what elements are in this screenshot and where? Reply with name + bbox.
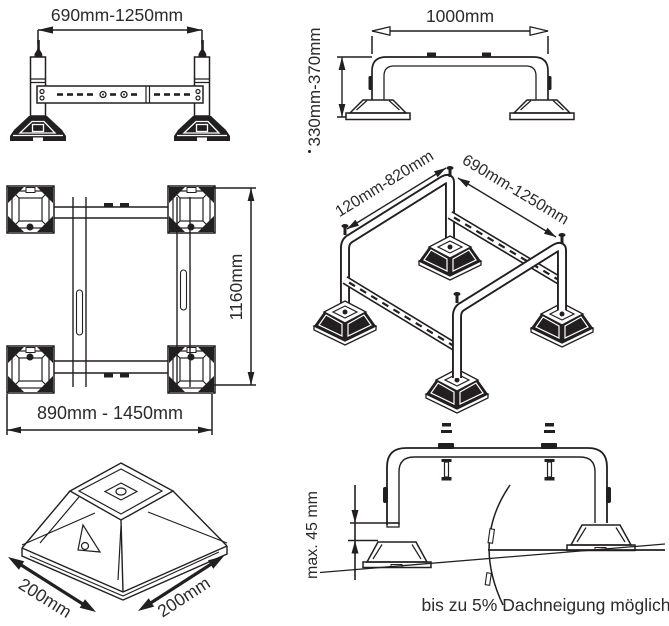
top-foot-bl xyxy=(7,346,54,393)
slope-mount-bolts xyxy=(441,423,555,481)
side-right-foot xyxy=(510,100,574,120)
front-view: 690mm-1250mm xyxy=(0,0,240,150)
top-depth-label: 1160mm xyxy=(226,254,246,321)
iso-width-label: 690mm-1250mm xyxy=(459,152,571,229)
side-view: 1000mm 330mm-370mm xyxy=(300,0,669,158)
top-width-dimension: 890mm - 1450mm xyxy=(7,394,212,435)
foot-detail-view: 200mm 200mm xyxy=(0,440,280,626)
side-width-label: 1000mm xyxy=(426,6,494,26)
front-right-foot xyxy=(174,116,230,141)
side-width-dimension: 1000mm xyxy=(372,6,548,54)
slope-caption: bis zu 5% Dachneigung möglich xyxy=(421,595,669,615)
technical-drawing-sheet: 690mm-1250mm xyxy=(0,0,669,626)
front-cross-rail xyxy=(37,86,203,103)
side-arch-tube xyxy=(369,53,552,101)
foot-top-face xyxy=(70,463,173,520)
side-height-dimension: 330mm-370mm xyxy=(305,27,372,146)
isometric-view: 120mm-820mm 690mm-1250mm xyxy=(300,142,669,426)
front-left-foot xyxy=(10,116,66,141)
front-width-label: 690mm-1250mm xyxy=(51,5,183,25)
iso-foot-left xyxy=(314,301,376,345)
top-depth-dimension: 1160mm xyxy=(213,188,256,385)
top-foot-br xyxy=(168,346,215,393)
side-left-foot xyxy=(346,100,410,120)
iso-rail-label: 120mm-820mm xyxy=(333,148,437,221)
roof-slope-view: max. 45 mm bis zu 5% Dachneigung möglich xyxy=(300,420,669,626)
iso-width-dimension: 690mm-1250mm xyxy=(458,152,572,237)
slope-height-label: max. 45 mm xyxy=(304,491,321,579)
foot-left-dimension: 200mm xyxy=(8,557,96,622)
top-view: 1160mm 890mm - 1450mm xyxy=(0,182,268,442)
top-width-label: 890mm - 1450mm xyxy=(37,403,183,423)
front-left-bolt xyxy=(35,40,43,57)
stray-dot xyxy=(308,150,311,153)
front-right-bolt xyxy=(199,40,207,57)
iso-foot-back xyxy=(419,236,481,280)
slope-arch-tube xyxy=(383,443,611,527)
front-width-dimension: 690mm-1250mm xyxy=(38,5,202,44)
side-height-label: 330mm-370mm xyxy=(305,27,324,146)
